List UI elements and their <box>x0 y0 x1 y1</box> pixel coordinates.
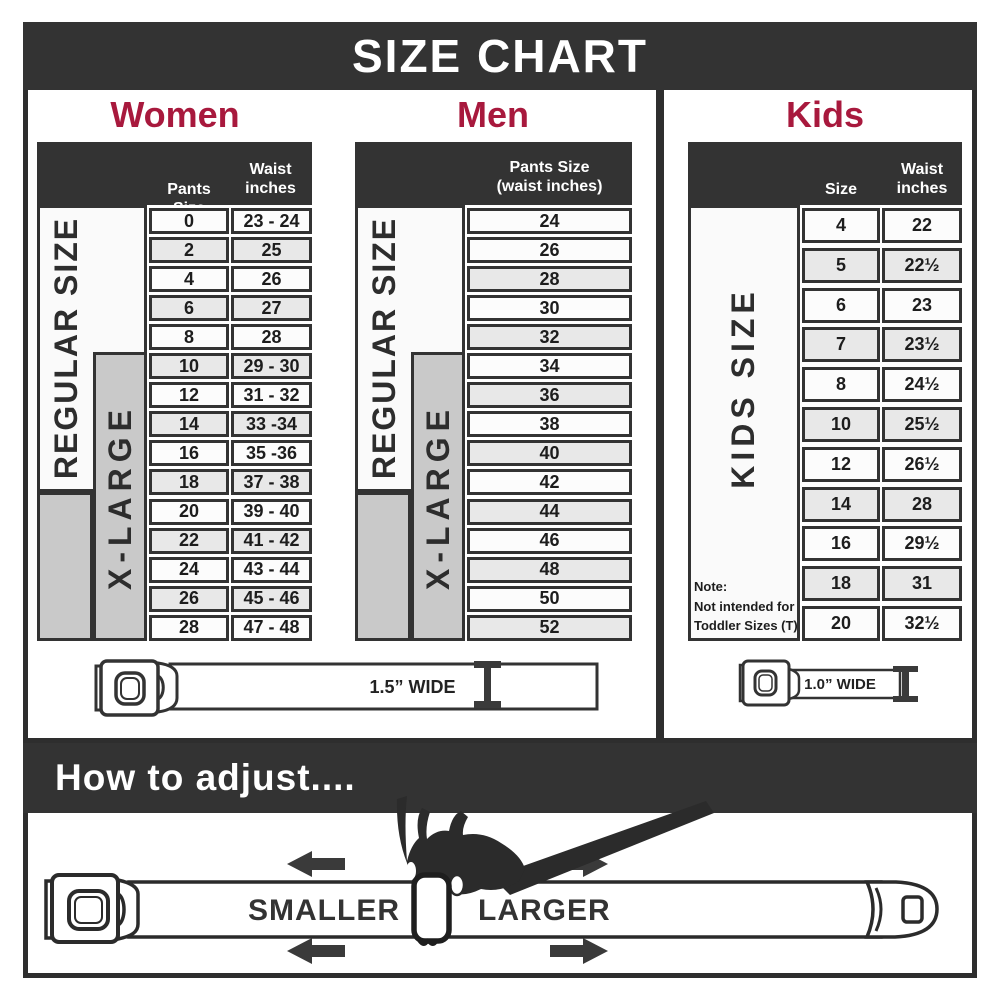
kids-belt-width-label: 1.0” WIDE <box>790 676 890 693</box>
size-chart-infographic: SIZE CHART Women Men Kids Pants Size Wai… <box>0 0 1000 1000</box>
adjust-belt-tip-hole <box>903 897 922 922</box>
adjust-belt-illustration <box>40 793 960 978</box>
adult-belt-width-label: 1.5” WIDE <box>330 677 495 698</box>
adult-belt-latch <box>158 663 177 712</box>
larger-label: LARGER <box>478 894 593 928</box>
panel-divider <box>656 90 664 743</box>
kids-note: Note: Not intended for Toddler Sizes (T) <box>694 577 800 636</box>
women-col-waist-line1: Waist <box>229 160 312 179</box>
kids-col-waist-line1: Waist <box>882 160 962 179</box>
adjust-slider <box>414 875 449 941</box>
women-regular-size-label: REGULAR SIZE <box>48 203 84 493</box>
kids-note-line3: Toddler Sizes (T) <box>694 616 800 636</box>
women-xlarge-band-lower <box>37 492 93 641</box>
women-xlarge-label: X-LARGE <box>102 357 138 637</box>
men-col-pants-size: Pants Size (waist inches) <box>467 158 632 196</box>
kids-size-label: KIDS SIZE <box>725 238 761 538</box>
women-col-pants-size: Pants Size <box>149 180 229 218</box>
kids-col-waist: Waist inches <box>882 160 962 198</box>
kids-note-line2: Not intended for <box>694 597 800 617</box>
men-regular-size-label: REGULAR SIZE <box>366 203 402 493</box>
kids-col-waist-line2: inches <box>882 179 962 198</box>
women-col-waist-line2: inches <box>229 179 312 198</box>
men-xlarge-band-lower <box>355 492 411 641</box>
men-col-line2: (waist inches) <box>467 177 632 196</box>
page-title: SIZE CHART <box>352 30 648 82</box>
title-bar: SIZE CHART <box>23 22 977 90</box>
men-col-line1: Pants Size <box>467 158 632 177</box>
how-to-adjust-heading: How to adjust.... <box>55 757 356 798</box>
smaller-label: SMALLER <box>248 894 380 928</box>
women-heading: Women <box>75 94 275 138</box>
women-col-waist: Waist inches <box>229 160 312 198</box>
kids-note-line1: Note: <box>694 577 800 597</box>
kids-heading: Kids <box>725 94 925 138</box>
fingertip <box>450 875 464 895</box>
kids-col-size: Size <box>802 180 880 199</box>
men-xlarge-label: X-LARGE <box>420 357 456 637</box>
men-heading: Men <box>393 94 593 138</box>
